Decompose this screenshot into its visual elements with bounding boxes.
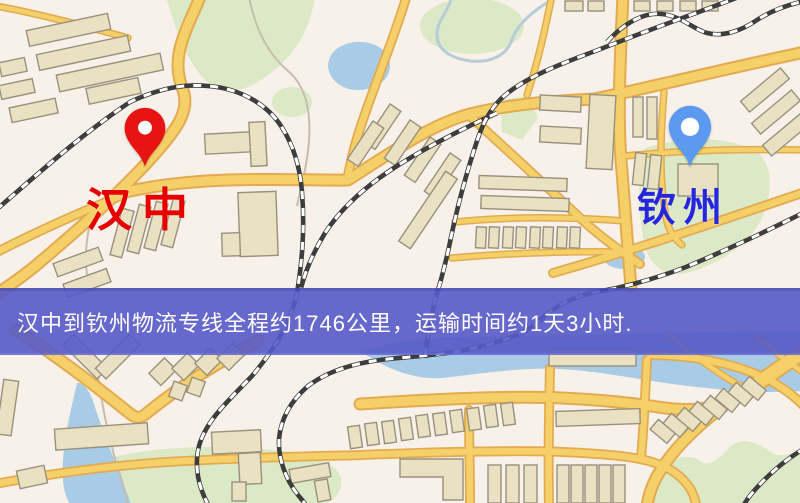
destination-marker[interactable] — [667, 104, 713, 168]
destination-pin-icon[interactable] — [667, 104, 713, 168]
map-viewport[interactable]: 汉中 钦州 汉中到钦州物流专线全程约1746公里，运输时间约1天3小时. — [0, 0, 800, 503]
origin-city-label: 汉中 — [86, 174, 198, 240]
route-info-banner: 汉中到钦州物流专线全程约1746公里，运输时间约1天3小时. — [0, 288, 800, 355]
origin-pin-icon[interactable] — [123, 106, 167, 168]
map-canvas[interactable] — [0, 0, 800, 503]
origin-marker[interactable] — [123, 106, 167, 168]
destination-city-label: 钦州 — [637, 177, 729, 233]
route-info-text: 汉中到钦州物流专线全程约1746公里，运输时间约1天3小时. — [0, 306, 633, 338]
